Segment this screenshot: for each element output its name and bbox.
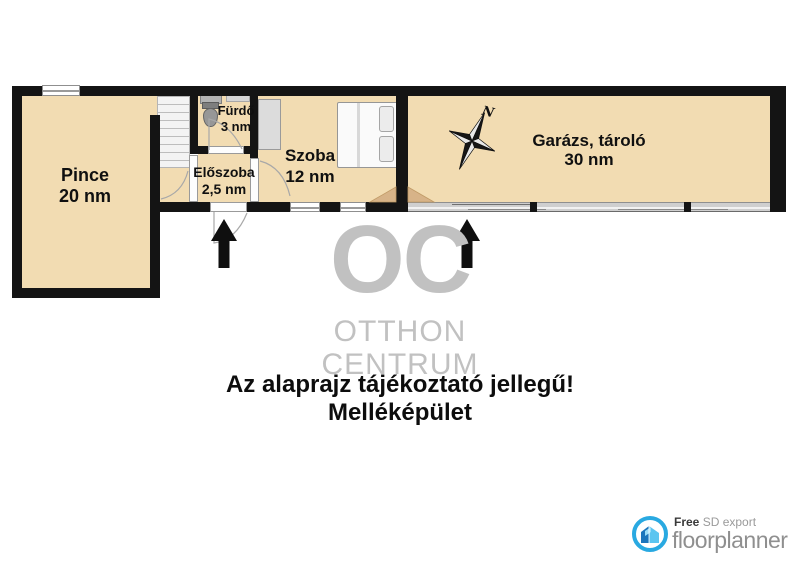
garage-sliding-door-line-1 [452,204,530,205]
room-area-eloszoba: 2,5 nm [186,181,262,198]
furdo-door-opening [208,146,244,154]
wall-furdo-bottom-left [190,146,208,154]
room-label-furdo: Fürdő 3 nm [206,103,266,135]
bed-pillow-top [379,106,394,132]
watermark-otthon: OTTHON [0,316,800,348]
room-name-szoba: Szoba [270,145,350,166]
wall-corridor-furdo [190,86,198,153]
room-label-pince: Pince 20 nm [35,165,135,207]
room-label-garazs: Garázs, tároló 30 nm [519,131,659,169]
room-name-pince: Pince [35,165,135,186]
bed-blanket-edge [357,103,360,167]
wall-right [770,86,786,212]
watermark-oc-logo: OC [0,210,800,310]
caption-line1: Az alaprajz tájékoztató jellegű! [0,371,800,398]
floorplanner-logo-ring [632,516,668,552]
stairs [157,96,190,168]
room-area-garazs: 30 nm [519,150,659,169]
footer-brand-floorplanner: floorplanner [672,527,787,553]
room-area-szoba: 12 nm [270,166,350,187]
room-name-furdo: Fürdő [206,103,266,119]
floorplan-export-image: N Pince 20 nm Fürdő 3 nm Előszoba 2,5 nm… [0,0,800,565]
caption-line2: Melléképület [0,399,800,426]
bed-pillow-bottom [379,136,394,162]
pince-window [42,85,80,96]
wall-szoba-garage [396,86,408,212]
room-area-furdo: 3 nm [206,119,266,135]
room-label-eloszoba: Előszoba 2,5 nm [186,164,262,198]
room-name-garazs: Garázs, tároló [519,131,659,150]
room-area-pince: 20 nm [35,186,135,207]
wall-furdo-bottom-right [244,146,258,154]
room-label-szoba: Szoba 12 nm [270,145,350,187]
room-name-eloszoba: Előszoba [186,164,262,181]
